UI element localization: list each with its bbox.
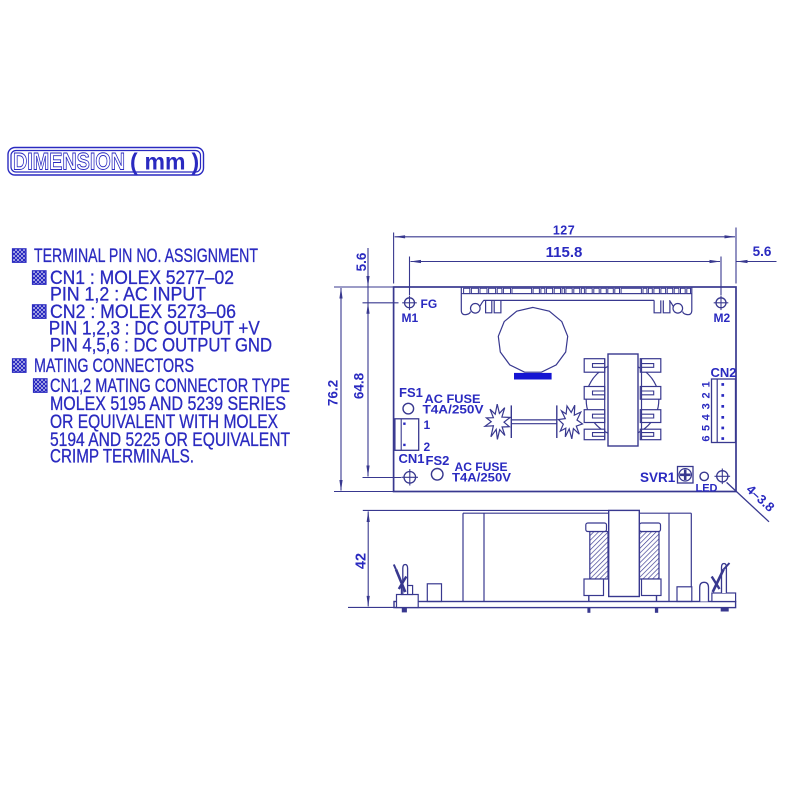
svg-text:42: 42: [354, 553, 370, 569]
svg-text:3: 3: [701, 403, 713, 409]
svg-text:DIMENSION: DIMENSION: [13, 149, 125, 176]
svg-text:4: 4: [701, 413, 713, 420]
svg-text:MATING CONNECTORS: MATING CONNECTORS: [34, 356, 194, 377]
svg-text:CN1: CN1: [399, 451, 425, 466]
svg-text:T4A/250V: T4A/250V: [423, 403, 484, 417]
svg-text:(: (: [130, 149, 138, 175]
svg-text:5.6: 5.6: [753, 244, 772, 259]
svg-text:2: 2: [701, 392, 713, 398]
svg-text:127: 127: [553, 223, 575, 237]
svg-text:M2: M2: [714, 311, 731, 325]
svg-text:TERMINAL PIN NO. ASSIGNMENT: TERMINAL PIN NO. ASSIGNMENT: [34, 246, 258, 267]
svg-text:6: 6: [701, 435, 713, 441]
svg-text:FG: FG: [421, 297, 438, 311]
svg-text:CN2: CN2: [711, 365, 737, 380]
svg-text:mm: mm: [145, 149, 186, 175]
svg-text:T4A/250V: T4A/250V: [452, 470, 511, 484]
svg-text:1: 1: [424, 418, 431, 432]
svg-text:FS2: FS2: [426, 453, 450, 468]
svg-text:PIN 4,5,6 : DC OUTPUT GND: PIN 4,5,6 : DC OUTPUT GND: [50, 335, 272, 356]
svg-text:CRIMP TERMINALS.: CRIMP TERMINALS.: [50, 446, 194, 467]
svg-text:5.6: 5.6: [354, 252, 369, 271]
svg-text:64.8: 64.8: [352, 372, 367, 399]
svg-text:FS1: FS1: [399, 385, 423, 400]
svg-text:4–3.8: 4–3.8: [743, 482, 777, 515]
svg-text:LED: LED: [696, 483, 718, 495]
svg-text:): ): [192, 149, 200, 175]
svg-text:115.8: 115.8: [546, 244, 583, 261]
svg-text:76.2: 76.2: [326, 380, 341, 406]
svg-text:SVR1: SVR1: [640, 470, 676, 485]
svg-text:5: 5: [701, 425, 713, 431]
svg-text:M1: M1: [402, 311, 419, 325]
svg-text:1: 1: [701, 381, 713, 387]
